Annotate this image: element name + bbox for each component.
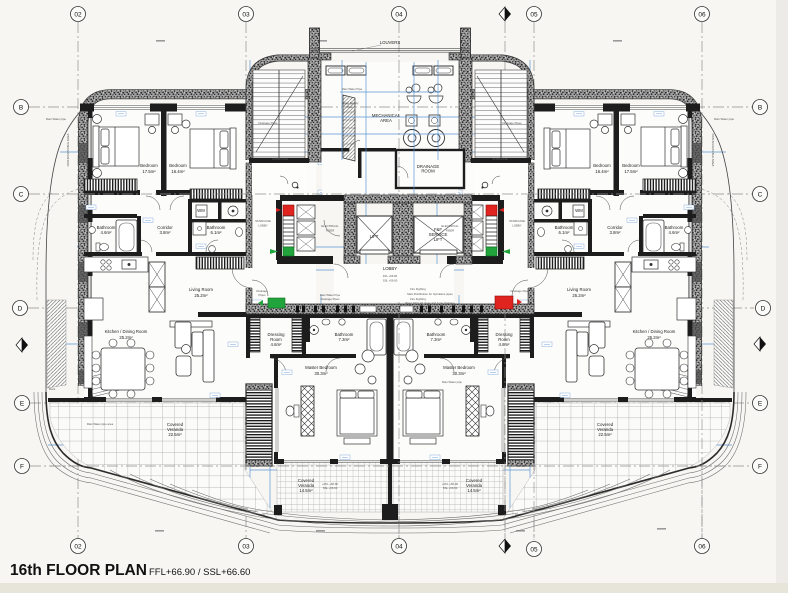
svg-text:06: 06: [698, 544, 706, 551]
svg-text:6.1m²: 6.1m²: [211, 230, 223, 235]
svg-text:LIFT: LIFT: [434, 237, 443, 242]
svg-text:4.6m²: 4.6m²: [499, 342, 511, 347]
svg-text:Fire Fighting: Fire Fighting: [410, 287, 426, 291]
svg-text:25.2m²: 25.2m²: [647, 335, 661, 340]
svg-text:Drainage Pipes: Drainage Pipes: [320, 297, 340, 301]
svg-text:Drainage Pipes: Drainage Pipes: [258, 121, 278, 125]
svg-text:FFL +66.90: FFL +66.90: [383, 274, 398, 278]
svg-text:Bedroom: Bedroom: [622, 163, 640, 168]
svg-text:Living Room: Living Room: [189, 287, 213, 292]
svg-text:6.1m²: 6.1m²: [559, 230, 571, 235]
svg-text:ELECTRICAL: ELECTRICAL: [441, 224, 459, 228]
svg-text:Riser, First aid pipes and zon: Riser, First aid pipes and zone drainage: [405, 301, 455, 305]
svg-text:7.3m²: 7.3m²: [339, 337, 351, 342]
svg-text:17.5m²: 17.5m²: [624, 169, 638, 174]
svg-text:22.5m²: 22.5m²: [168, 432, 182, 437]
svg-text:3.8m²: 3.8m²: [160, 230, 172, 235]
svg-text:Kitchen / Dining Room: Kitchen / Dining Room: [633, 329, 676, 334]
svg-text:4.6m²: 4.6m²: [101, 230, 113, 235]
svg-text:B: B: [19, 105, 23, 112]
svg-text:STAIRCASE: STAIRCASE: [272, 157, 288, 161]
svg-text:25.2m²: 25.2m²: [119, 335, 133, 340]
svg-text:Rain Water pipe: Rain Water pipe: [46, 117, 66, 121]
svg-text:Main Distribution for Sprinkle: Main Distribution for Sprinklers pipes: [407, 292, 453, 296]
svg-text:FFL+66.90 / SSL+66.60: FFL+66.90 / SSL+66.60: [149, 567, 250, 578]
svg-text:Rain Water pipe area: Rain Water pipe area: [87, 422, 114, 426]
svg-text:NON ACCESSIBLE AREA: NON ACCESSIBLE AREA: [711, 134, 715, 167]
svg-text:LIFT: LIFT: [370, 234, 379, 239]
svg-text:04: 04: [395, 12, 403, 19]
svg-text:E: E: [758, 401, 763, 408]
svg-text:D: D: [761, 306, 766, 313]
svg-text:SSL +66.60: SSL +66.60: [323, 486, 338, 490]
svg-text:Pipes: Pipes: [347, 105, 355, 109]
svg-text:30.3m²: 30.3m²: [314, 371, 328, 376]
svg-text:4.6m²: 4.6m²: [669, 230, 681, 235]
svg-text:WM: WM: [575, 208, 583, 213]
svg-text:WM: WM: [197, 208, 205, 213]
svg-text:16.4m²: 16.4m²: [595, 169, 609, 174]
svg-text:3.8m²: 3.8m²: [610, 230, 622, 235]
svg-text:Rain Water pipe: Rain Water pipe: [714, 117, 734, 121]
svg-text:STAIRCASE: STAIRCASE: [255, 219, 271, 223]
svg-text:LOBBY: LOBBY: [258, 224, 267, 228]
svg-text:Bedroom: Bedroom: [140, 163, 158, 168]
svg-text:25.2m²: 25.2m²: [194, 293, 208, 298]
svg-text:D: D: [18, 306, 23, 313]
svg-text:RISER: RISER: [326, 229, 335, 233]
svg-text:Bedroom: Bedroom: [169, 163, 187, 168]
svg-text:Rain Water pipe: Rain Water pipe: [442, 380, 462, 384]
svg-text:05: 05: [530, 12, 538, 19]
svg-text:02: 02: [74, 12, 82, 19]
svg-text:LOUVERS: LOUVERS: [380, 40, 401, 45]
svg-text:Kitchen / Dining Room: Kitchen / Dining Room: [105, 329, 148, 334]
svg-text:Master Bedroom: Master Bedroom: [305, 365, 337, 370]
svg-text:14.5m²: 14.5m²: [299, 488, 313, 493]
svg-text:Drainage Pipes: Drainage Pipes: [502, 121, 522, 125]
svg-text:7.3m²: 7.3m²: [431, 337, 443, 342]
svg-text:ROOM: ROOM: [421, 169, 435, 174]
svg-text:05: 05: [530, 547, 538, 554]
svg-text:C: C: [19, 192, 24, 199]
svg-text:SSL +56.60: SSL +56.60: [383, 279, 398, 283]
svg-text:RISER: RISER: [446, 229, 455, 233]
svg-text:C: C: [758, 192, 763, 199]
svg-text:Bedroom: Bedroom: [593, 163, 611, 168]
svg-text:Drainage Pipes: Drainage Pipes: [510, 289, 530, 293]
svg-text:Living Room: Living Room: [567, 287, 591, 292]
svg-text:STAIRCASE: STAIRCASE: [492, 157, 508, 161]
svg-text:02: 02: [74, 544, 82, 551]
svg-text:22.5m²: 22.5m²: [598, 432, 612, 437]
svg-text:14.5m²: 14.5m²: [467, 488, 481, 493]
svg-text:25.2m²: 25.2m²: [572, 293, 586, 298]
svg-text:16th FLOOR PLAN: 16th FLOOR PLAN: [10, 562, 147, 579]
svg-text:LOBBY: LOBBY: [512, 224, 521, 228]
svg-text:NON ACCESSIBLE AREA: NON ACCESSIBLE AREA: [66, 134, 70, 167]
svg-text:03: 03: [242, 12, 250, 19]
svg-text:LOBBY: LOBBY: [383, 266, 397, 271]
svg-text:17.5m²: 17.5m²: [142, 169, 156, 174]
svg-text:F: F: [758, 464, 762, 471]
svg-text:STAIRCASE: STAIRCASE: [509, 219, 525, 223]
svg-text:Plant: Plant: [49, 387, 56, 391]
svg-text:Rain Water Pipe: Rain Water Pipe: [342, 87, 363, 91]
svg-text:4.6m²: 4.6m²: [271, 342, 283, 347]
svg-text:04: 04: [395, 544, 403, 551]
svg-text:ELECTRICAL: ELECTRICAL: [321, 224, 339, 228]
svg-text:AREA: AREA: [380, 118, 392, 123]
svg-text:30.3m²: 30.3m²: [452, 371, 466, 376]
svg-text:Pipes: Pipes: [259, 293, 267, 297]
svg-text:B: B: [758, 105, 762, 112]
svg-text:03: 03: [242, 544, 250, 551]
svg-text:06: 06: [698, 12, 706, 19]
svg-text:SSL +66.60: SSL +66.60: [443, 486, 458, 490]
svg-text:Master Bedroom: Master Bedroom: [443, 365, 475, 370]
svg-text:16.4m²: 16.4m²: [171, 169, 185, 174]
svg-text:F: F: [20, 464, 24, 471]
svg-text:E: E: [20, 401, 25, 408]
